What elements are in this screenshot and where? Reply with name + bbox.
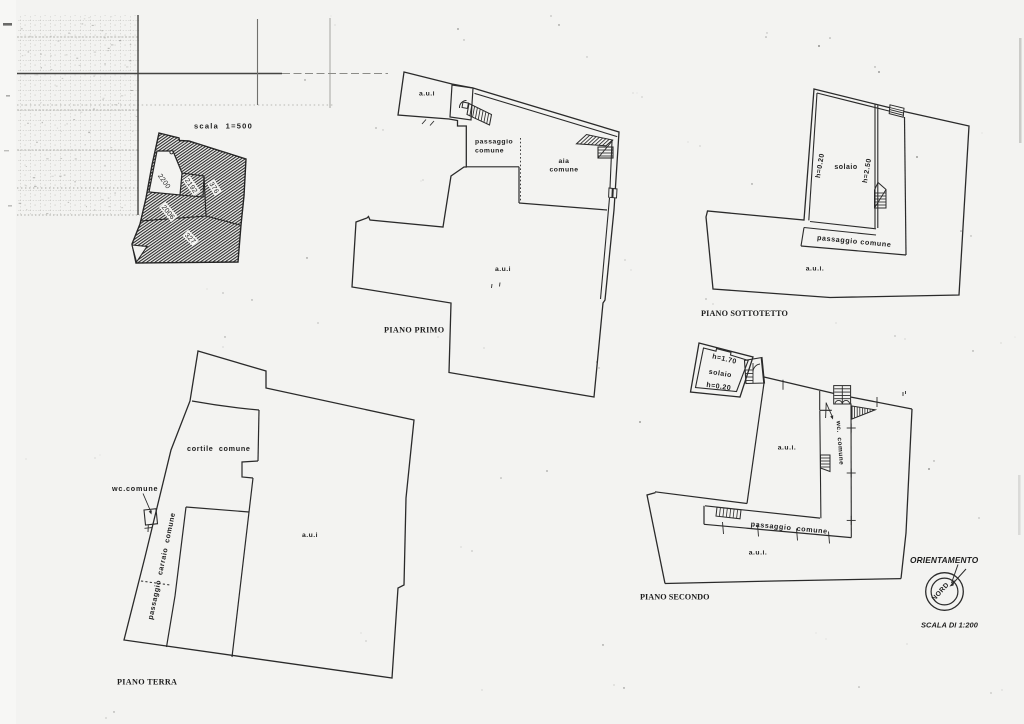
svg-text:ORIENTAMENTO: ORIENTAMENTO bbox=[910, 555, 979, 565]
svg-text:wc. comune: wc. comune bbox=[834, 420, 844, 466]
svg-text:solaio: solaio bbox=[708, 369, 732, 380]
svg-text:aia: aia bbox=[559, 158, 570, 165]
svg-text:PIANO SECONDO: PIANO SECONDO bbox=[640, 593, 710, 602]
svg-text:h=1.70: h=1.70 bbox=[711, 353, 737, 365]
svg-text:a.u.i.: a.u.i. bbox=[749, 550, 768, 557]
svg-text:comune: comune bbox=[549, 167, 578, 174]
svg-text:h=0.20: h=0.20 bbox=[706, 382, 732, 392]
svg-text:SCALA DI 1:200: SCALA DI 1:200 bbox=[921, 621, 979, 630]
svg-text:solaio: solaio bbox=[834, 164, 857, 171]
svg-text:h=2.50: h=2.50 bbox=[862, 158, 873, 184]
svg-text:a.u.i: a.u.i bbox=[419, 91, 435, 98]
svg-text:comune: comune bbox=[475, 148, 504, 155]
svg-text:cortile comune: cortile comune bbox=[187, 444, 251, 453]
svg-text:passaggio: passaggio bbox=[475, 139, 513, 146]
svg-text:a.u.i: a.u.i bbox=[302, 532, 318, 539]
svg-text:wc.comune: wc.comune bbox=[111, 484, 158, 493]
svg-text:a.u.i: a.u.i bbox=[495, 266, 511, 273]
svg-text:scala 1=500: scala 1=500 bbox=[194, 122, 253, 131]
svg-text:NORD: NORD bbox=[931, 581, 951, 602]
svg-text:a.u.i.: a.u.i. bbox=[806, 266, 825, 273]
svg-text:PIANO PRIMO: PIANO PRIMO bbox=[384, 326, 444, 335]
svg-text:h=0.20: h=0.20 bbox=[815, 153, 826, 179]
svg-text:PIANO SOTTOTETTO: PIANO SOTTOTETTO bbox=[701, 309, 788, 318]
svg-text:PIANO TERRA: PIANO TERRA bbox=[117, 678, 177, 687]
svg-text:passaggio comune: passaggio comune bbox=[817, 233, 892, 249]
svg-text:a.u.i.: a.u.i. bbox=[778, 445, 797, 452]
svg-text:passaggio comune: passaggio comune bbox=[750, 519, 828, 535]
